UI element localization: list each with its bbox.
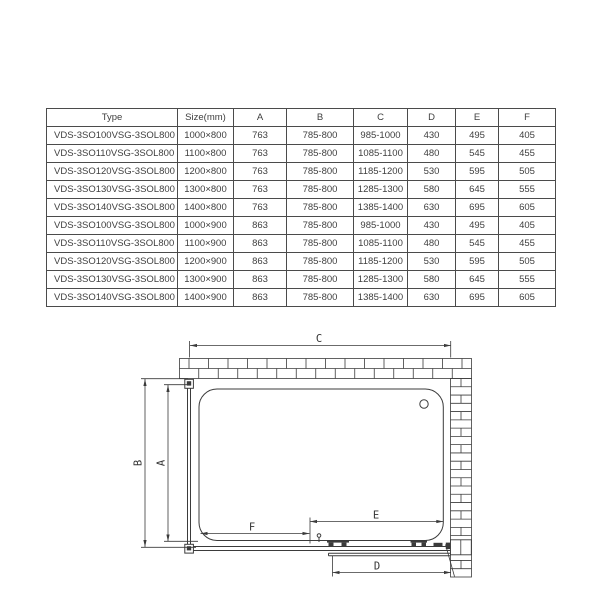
door-end-cap [434, 543, 443, 547]
type-model-vsg: VSG-3SOL800 [112, 166, 175, 177]
cell-f: 505 [499, 163, 556, 181]
cell-size: 1200×800 [178, 163, 234, 181]
type-model-vds: VDS-3SO130 [54, 274, 112, 285]
type-model-vds: VDS-3SO140 [54, 292, 112, 303]
cell-size: 1100×900 [178, 235, 234, 253]
cell-e: 545 [456, 235, 499, 253]
spec-sheet-page: Type Size(mm) A B C D E F VDS-3SO100VSG-… [0, 0, 600, 600]
cell-f: 405 [499, 217, 556, 235]
left-fixed-panel [185, 379, 194, 553]
type-model-vds: VDS-3SO110 [54, 238, 111, 249]
cell-c: 1385-1400 [354, 289, 408, 307]
cell-type: VDS-3SO100VSG-3SOL800 [47, 217, 178, 235]
cell-d: 630 [408, 289, 456, 307]
cell-e: 495 [456, 217, 499, 235]
dimension-E: E [310, 510, 443, 524]
cell-f: 455 [499, 235, 556, 253]
cell-f: 455 [499, 145, 556, 163]
cell-c: 985-1000 [354, 217, 408, 235]
cell-e: 495 [456, 127, 499, 145]
cell-b: 785-800 [287, 127, 354, 145]
bottom-rail [194, 547, 451, 551]
cell-type: VDS-3SO130VSG-3SOL800 [47, 271, 178, 289]
table-row: VDS-3SO130VSG-3SOL8001300×900863785-8001… [47, 271, 556, 289]
dimension-F: F [201, 522, 310, 536]
cell-e: 695 [456, 199, 499, 217]
type-model-vsg: VSG-3SOL800 [112, 220, 175, 231]
type-model-vds: VDS-3SO120 [54, 166, 112, 177]
cell-b: 785-800 [287, 289, 354, 307]
cell-type: VDS-3SO130VSG-3SOL800 [47, 181, 178, 199]
table-row: VDS-3SO120VSG-3SOL8001200×900863785-8001… [47, 253, 556, 271]
table-row: VDS-3SO110VSG-3SOL8001100×900863785-8001… [47, 235, 556, 253]
dim-label-C: C [316, 333, 322, 345]
table-row: VDS-3SO140VSG-3SOL8001400×900863785-8001… [47, 289, 556, 307]
cell-type: VDS-3SO120VSG-3SOL800 [47, 163, 178, 181]
cell-a: 863 [234, 217, 287, 235]
table-row: VDS-3SO120VSG-3SOL8001200×800763785-8001… [47, 163, 556, 181]
sliding-door-panel [329, 553, 451, 556]
cell-b: 785-800 [287, 163, 354, 181]
cell-d: 480 [408, 235, 456, 253]
type-model-vds: VDS-3SO130 [54, 184, 112, 195]
cell-d: 530 [408, 253, 456, 271]
cell-size: 1000×900 [178, 217, 234, 235]
cell-a: 863 [234, 271, 287, 289]
shower-tray-outline [199, 389, 443, 541]
cell-e: 595 [456, 163, 499, 181]
type-model-vds: VDS-3SO140 [54, 202, 112, 213]
type-model-vds: VDS-3SO120 [54, 256, 112, 267]
header-size: Size(mm) [178, 109, 234, 127]
table-row: VDS-3SO140VSG-3SOL8001400×800763785-8001… [47, 199, 556, 217]
door-roller-left [327, 541, 349, 547]
cell-f: 605 [499, 289, 556, 307]
cell-e: 545 [456, 145, 499, 163]
type-model-vsg: VSG-3SOL800 [111, 148, 174, 159]
spec-table: Type Size(mm) A B C D E F VDS-3SO100VSG-… [46, 108, 556, 307]
cell-b: 785-800 [287, 235, 354, 253]
dimension-C: C [190, 333, 452, 358]
table-row: VDS-3SO100VSG-3SOL8001000×800763785-8009… [47, 127, 556, 145]
cell-e: 645 [456, 271, 499, 289]
dim-label-A: A [156, 459, 168, 466]
header-b: B [287, 109, 354, 127]
cell-f: 605 [499, 199, 556, 217]
dim-label-E: E [373, 510, 379, 522]
cell-c: 1085-1100 [354, 145, 408, 163]
type-model-vsg: VSG-3SOL800 [112, 274, 175, 285]
cell-type: VDS-3SO120VSG-3SOL800 [47, 253, 178, 271]
cell-f: 505 [499, 253, 556, 271]
header-f: F [499, 109, 556, 127]
cell-type: VDS-3SO110VSG-3SOL800 [47, 145, 178, 163]
header-type: Type [47, 109, 178, 127]
cell-d: 480 [408, 145, 456, 163]
cell-d: 430 [408, 217, 456, 235]
cell-b: 785-800 [287, 271, 354, 289]
top-wall-bricks [180, 359, 472, 379]
cell-c: 1285-1300 [354, 271, 408, 289]
cell-d: 530 [408, 163, 456, 181]
cell-e: 595 [456, 253, 499, 271]
table-row: VDS-3SO130VSG-3SOL8001300×800763785-8001… [47, 181, 556, 199]
cell-c: 1285-1300 [354, 181, 408, 199]
cell-size: 1400×800 [178, 199, 234, 217]
cell-f: 555 [499, 271, 556, 289]
dim-label-B: B [133, 460, 145, 466]
cell-f: 405 [499, 127, 556, 145]
cell-size: 1300×900 [178, 271, 234, 289]
type-model-vds: VDS-3SO110 [54, 148, 111, 159]
cell-d: 580 [408, 271, 456, 289]
cell-c: 1085-1100 [354, 235, 408, 253]
cell-e: 695 [456, 289, 499, 307]
technical-drawing: C B A F [100, 330, 500, 600]
cell-type: VDS-3SO140VSG-3SOL800 [47, 199, 178, 217]
cell-type: VDS-3SO140VSG-3SOL800 [47, 289, 178, 307]
type-model-vsg: VSG-3SOL800 [112, 292, 175, 303]
cell-a: 763 [234, 127, 287, 145]
cell-type: VDS-3SO110VSG-3SOL800 [47, 235, 178, 253]
type-model-vsg: VSG-3SOL800 [111, 238, 174, 249]
cell-f: 555 [499, 181, 556, 199]
cell-size: 1200×900 [178, 253, 234, 271]
cell-a: 763 [234, 199, 287, 217]
cell-size: 1000×800 [178, 127, 234, 145]
cell-size: 1300×800 [178, 181, 234, 199]
cell-size: 1100×800 [178, 145, 234, 163]
door-roller-right [411, 541, 428, 547]
table-row: VDS-3SO100VSG-3SOL8001000×900863785-8009… [47, 217, 556, 235]
dim-label-D: D [374, 561, 380, 573]
cell-c: 1185-1200 [354, 253, 408, 271]
type-model-vds: VDS-3SO100 [54, 130, 112, 141]
cell-b: 785-800 [287, 217, 354, 235]
type-model-vsg: VSG-3SOL800 [112, 130, 175, 141]
type-model-vsg: VSG-3SOL800 [112, 202, 175, 213]
cell-size: 1400×900 [178, 289, 234, 307]
dimension-A: A [156, 385, 199, 542]
cell-b: 785-800 [287, 199, 354, 217]
cell-b: 785-800 [287, 145, 354, 163]
cell-c: 1185-1200 [354, 163, 408, 181]
table-header-row: Type Size(mm) A B C D E F [47, 109, 556, 127]
header-e: E [456, 109, 499, 127]
cell-a: 863 [234, 289, 287, 307]
cell-b: 785-800 [287, 253, 354, 271]
cell-d: 580 [408, 181, 456, 199]
dimension-D: D [333, 545, 455, 577]
table-row: VDS-3SO110VSG-3SOL8001100×800763785-8001… [47, 145, 556, 163]
cell-e: 645 [456, 181, 499, 199]
header-d: D [408, 109, 456, 127]
header-c: C [354, 109, 408, 127]
cell-a: 863 [234, 253, 287, 271]
cell-c: 1385-1400 [354, 199, 408, 217]
wall-bracket [446, 540, 472, 555]
dim-label-F: F [249, 522, 255, 534]
cell-d: 430 [408, 127, 456, 145]
cell-a: 863 [234, 235, 287, 253]
cell-a: 763 [234, 163, 287, 181]
type-model-vds: VDS-3SO100 [54, 220, 112, 231]
type-model-vsg: VSG-3SOL800 [112, 256, 175, 267]
type-model-vsg: VSG-3SOL800 [112, 184, 175, 195]
drain-circle [420, 400, 428, 408]
cell-b: 785-800 [287, 181, 354, 199]
cell-type: VDS-3SO100VSG-3SOL800 [47, 127, 178, 145]
header-a: A [234, 109, 287, 127]
cell-c: 985-1000 [354, 127, 408, 145]
cell-d: 630 [408, 199, 456, 217]
cell-a: 763 [234, 145, 287, 163]
cell-a: 763 [234, 181, 287, 199]
